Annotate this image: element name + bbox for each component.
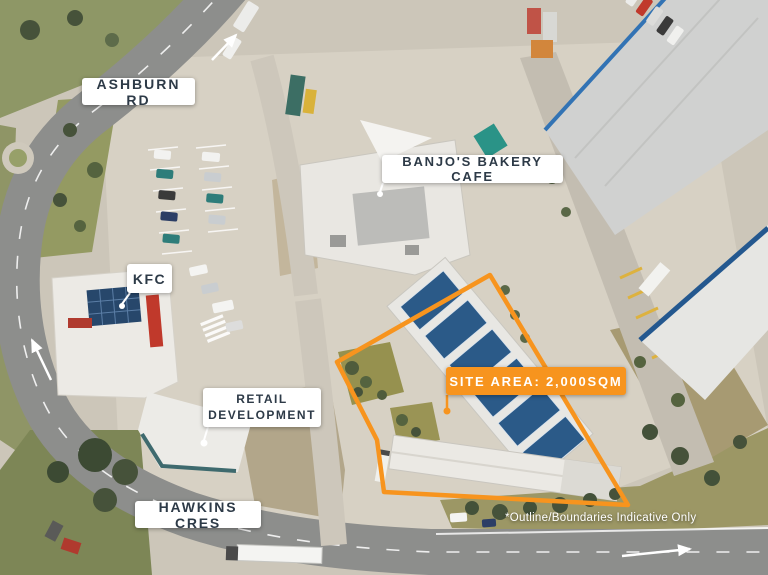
disclaimer-text: *Outline/Boundaries Indicative Only (505, 512, 720, 524)
label-hawkins-cres: HAWKINS CRES (135, 501, 261, 528)
aerial-site-map: ASHBURN RD BANJO'S BAKERY CAFE KFC RETAI… (0, 0, 768, 575)
label-banjos-bakery-cafe: BANJO'S BAKERY CAFE (382, 155, 563, 183)
retail-development-text: RETAIL DEVELOPMENT (205, 392, 319, 423)
label-ashburn-rd: ASHBURN RD (82, 78, 195, 105)
banjos-bakery-cafe-text: BANJO'S BAKERY CAFE (382, 154, 563, 184)
label-kfc: KFC (127, 264, 172, 293)
site-area-text: SITE AREA: 2,000SQM (449, 374, 622, 389)
kfc-text: KFC (133, 271, 166, 287)
site-area-badge: SITE AREA: 2,000SQM (446, 367, 626, 395)
hawkins-cres-text: HAWKINS CRES (135, 499, 261, 531)
ashburn-rd-text: ASHBURN RD (82, 76, 195, 108)
label-retail-development: RETAIL DEVELOPMENT (203, 388, 321, 427)
